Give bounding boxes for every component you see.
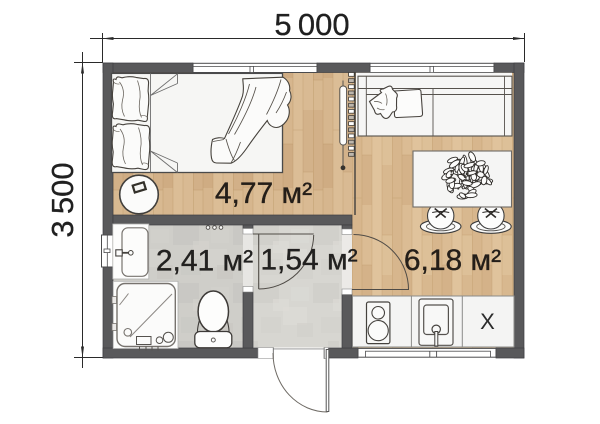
svg-text:4,77 м²: 4,77 м²	[215, 177, 312, 210]
svg-text:3 500: 3 500	[45, 162, 80, 237]
svg-text:X: X	[480, 309, 495, 334]
svg-text:1,54 м²: 1,54 м²	[260, 243, 357, 276]
svg-text:6,18 м²: 6,18 м²	[404, 244, 501, 277]
svg-text:2,41 м²: 2,41 м²	[156, 245, 253, 278]
svg-text:5 000: 5 000	[274, 7, 349, 42]
